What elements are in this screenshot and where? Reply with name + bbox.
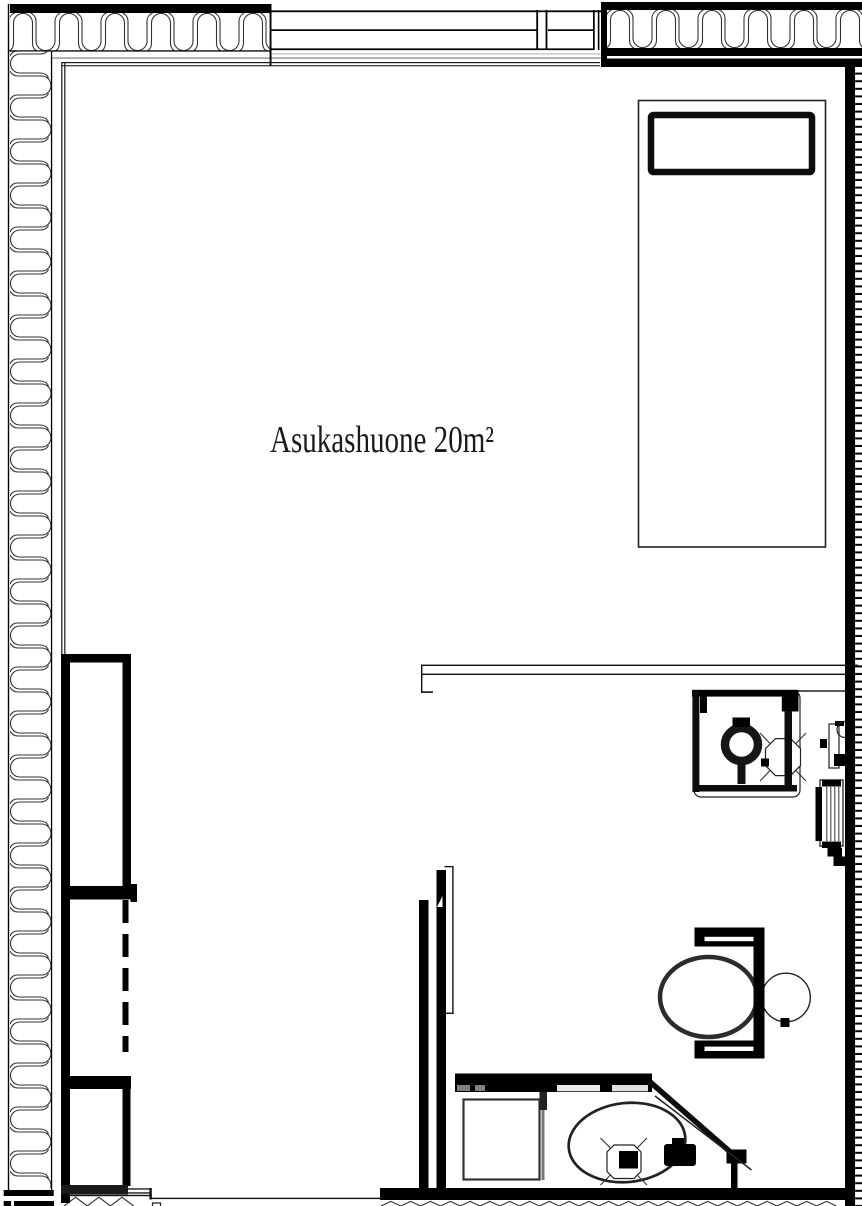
svg-text:Asukashuone 20m²: Asukashuone 20m² <box>270 419 494 461</box>
